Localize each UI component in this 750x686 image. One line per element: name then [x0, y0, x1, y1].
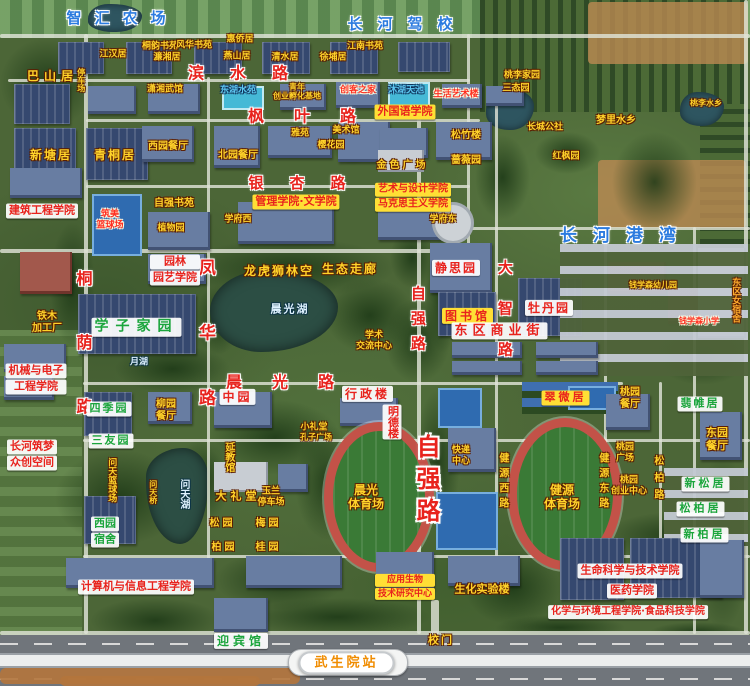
map-label: 建筑工程学院 [6, 203, 78, 220]
map-label: 新松居 [679, 476, 730, 493]
map-label: 学府东 [429, 215, 456, 226]
map-label: 桐荫路 [73, 222, 92, 462]
map-label: 蔷薇园 [451, 155, 481, 167]
map-label: 桃园广场 [616, 442, 634, 463]
map-label: 生活艺术楼 [433, 90, 478, 101]
map-label: 长河港湾 [544, 226, 692, 246]
map-label: 樱花园 [317, 141, 344, 152]
map-label: 化学与环境工程学院·食品科技学院 [548, 604, 708, 620]
map-label: 迎宾馆 [210, 632, 268, 650]
map-label: 中园 [216, 388, 255, 406]
map-label: 艺术与设计学院马克思主义学院 [375, 182, 451, 213]
map-label: 三态园 [502, 84, 529, 95]
map-label: 桐韵书苑 [142, 42, 178, 53]
map-label: 新柏居 [678, 527, 729, 544]
map-label: 桃李家园 [504, 71, 540, 82]
map-label: 梦里水乡 [596, 115, 636, 127]
map-label: 凤华路 [195, 211, 215, 454]
map-label: 枫叶路 [218, 108, 386, 127]
map-label: 行政楼 [339, 385, 393, 403]
map-label: 松柏居 [674, 501, 725, 518]
map-label: 桃李水乡 [690, 98, 722, 107]
map-label: 三友园 [87, 433, 134, 450]
map-label: 自强书苑 [154, 198, 194, 210]
map-label: 钱学森小学 [679, 316, 719, 325]
map-label: 东湖水苑 [220, 86, 256, 97]
map-label: 桃园餐厅 [620, 387, 640, 411]
map-label: 学子家园 [85, 317, 182, 338]
map-label: 晨光体育场 [348, 483, 384, 511]
map-label: 滨水路 [162, 65, 314, 84]
map-label: 雅苑 [291, 129, 309, 140]
map-label: 濂湘居 [153, 53, 180, 64]
map-label: 燕山居 [223, 52, 250, 63]
map-label: 沐湖天池 [388, 86, 424, 97]
map-label: 月湖 [130, 358, 148, 369]
map-label: 西园宿舍 [91, 516, 119, 549]
map-label: 惠侨居 [226, 35, 253, 46]
map-label: 长河驾校 [332, 16, 467, 34]
map-label: 牡丹园 [523, 299, 573, 317]
map-label: 自强路 [408, 276, 426, 361]
map-label: 银杏路 [222, 175, 371, 193]
map-label: 新塘居 [28, 148, 72, 162]
map-label-layer: 智汇农场长河驾校长河港湾滨水路枫叶路银杏路晨光路桐荫路凤华路自强路自强路大智路健… [0, 0, 750, 686]
map-label: 西园餐厅 [148, 141, 188, 153]
map-label: 健源东路 [596, 448, 608, 513]
map-label: 创客之家 [340, 86, 376, 97]
map-label: 健源体育场 [544, 483, 580, 511]
map-label: 翠微居 [539, 390, 590, 407]
map-label: 智汇农场 [53, 10, 178, 28]
map-label: 生态走廊 [320, 262, 378, 276]
map-label: 机械与电子工程学院 [6, 363, 67, 396]
map-label: 明德楼 [383, 404, 402, 441]
map-label: 问天湖 [177, 479, 189, 509]
map-label: 松竹楼 [451, 130, 481, 142]
map-label: 问天篮球场 [106, 458, 117, 503]
map-label: 青桐居 [92, 148, 136, 162]
map-label: 园林园艺学院 [150, 254, 200, 287]
map-label: 晨光湖 [269, 304, 310, 317]
map-label: 东区女宿舍 [730, 278, 741, 323]
map-label: 潇湘武馆 [147, 85, 183, 96]
map-label: 柳园餐厅 [156, 399, 176, 423]
map-label: 延教馆 [222, 442, 234, 472]
map-label: 应用生物技术研究中心 [375, 573, 435, 601]
map-label: 玉兰停车场 [257, 486, 284, 507]
map-label: 柏园 [209, 542, 238, 554]
map-label: 金色广场 [374, 160, 429, 172]
map-label: 学府西 [224, 215, 251, 226]
map-label: 清水居 [271, 53, 298, 64]
map-label: 停车场 [76, 68, 85, 92]
map-label: 医药学院 [607, 583, 657, 600]
map-label: 植物园 [157, 224, 184, 235]
map-label: 生命科学与技术学院 [578, 563, 683, 580]
map-label: 孔子广场 [300, 432, 332, 441]
map-label: 四季园 [85, 401, 132, 418]
map-label: 桃园创业中心 [611, 475, 647, 496]
map-label: 巴山居 [22, 69, 78, 83]
map-label: 松园 [207, 518, 236, 530]
map-label: 生化实验楼 [455, 584, 510, 597]
map-label: 徐埔居 [319, 53, 346, 64]
map-label: 红枫园 [552, 152, 579, 163]
station-badge: 武生院站 [295, 651, 394, 674]
map-label: 东园餐厅 [706, 427, 728, 453]
map-label: 学术交流中心 [356, 330, 392, 351]
map-label: 外国语学院 [375, 104, 436, 121]
map-label: 大礼堂 [212, 491, 261, 504]
map-label: 校门 [426, 635, 454, 648]
map-label: 江南书苑 [347, 42, 383, 53]
map-label: 美术馆 [332, 126, 359, 137]
map-label: 钱学森幼儿园 [629, 280, 677, 289]
map-label: 计算机与信息工程学院 [78, 579, 194, 596]
map-label: 长城公社 [527, 123, 563, 134]
map-label: 梅园 [253, 518, 282, 530]
map-label: 健源西路 [496, 448, 508, 513]
map-label: 筑美篮球场 [96, 209, 123, 230]
map-label: 江汉居 [99, 50, 126, 61]
map-label: 管理学院·文学院 [252, 194, 339, 211]
map-label: 东区商业街 [446, 321, 547, 340]
map-label: 北园餐厅 [218, 150, 258, 162]
map-label: 大智路 [495, 234, 513, 383]
map-label: 长河筑梦众创空间 [7, 439, 57, 472]
campus-aerial-map: 智汇农场长河驾校长河港湾滨水路枫叶路银杏路晨光路桐荫路凤华路自强路自强路大智路健… [0, 0, 750, 686]
map-label: 问天桥 [148, 480, 157, 504]
map-label: 风华书苑 [176, 41, 212, 52]
map-label: 龙虎狮林空 [242, 264, 314, 278]
map-label: 松柏路 [651, 448, 663, 506]
map-label: 翡帷居 [676, 396, 723, 413]
map-label: 静思园 [430, 259, 480, 277]
map-label: 自强路 [412, 426, 440, 530]
map-label: 铁木加工厂 [32, 311, 62, 335]
map-label: 青年创业孵化基地 [273, 83, 321, 102]
map-label: 桂园 [253, 542, 282, 554]
map-label: 快递中心 [452, 445, 470, 466]
